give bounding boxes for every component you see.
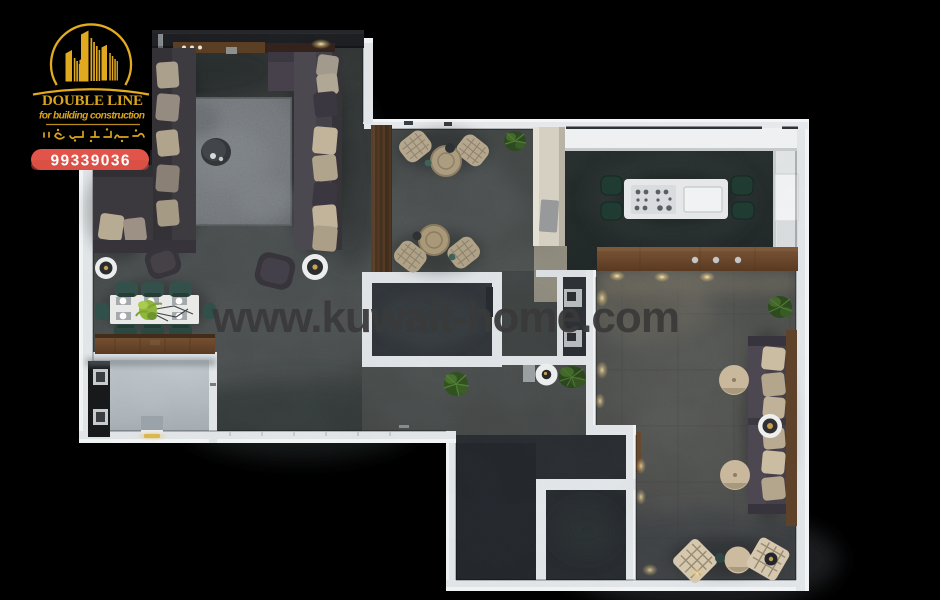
svg-text:DOUBLE LINE: DOUBLE LINE: [42, 93, 144, 109]
svg-text:www.kuwait-home.com: www.kuwait-home.com: [211, 293, 680, 342]
svg-text:for building construction: for building construction: [39, 111, 145, 122]
svg-text:99339036: 99339036: [51, 153, 130, 170]
